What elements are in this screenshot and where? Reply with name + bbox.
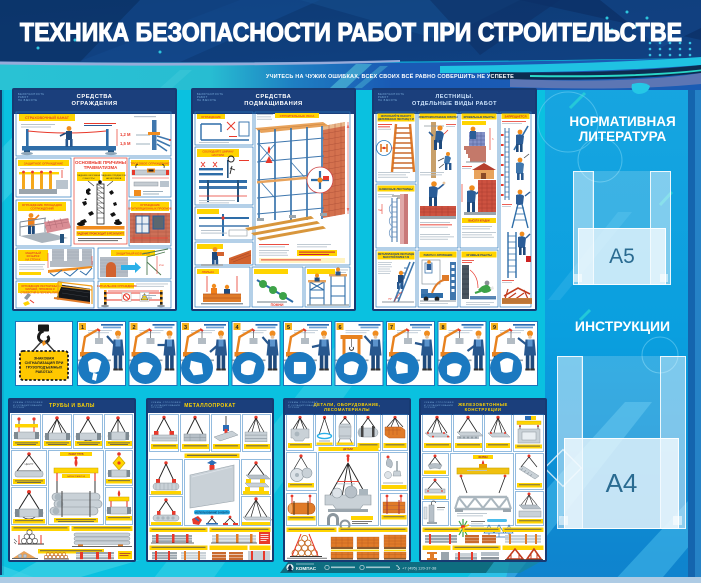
svg-text:ВЫСОТОЙ БОЛЕЕ 5 М: ВЫСОТОЙ БОЛЕЕ 5 М (383, 256, 409, 259)
svg-text:ЗНАКОВАЯ: ЗНАКОВАЯ (34, 357, 54, 361)
svg-text:ОГНЕВЫЕ РАБОТЫ: ОГНЕВЫЕ РАБОТЫ (466, 253, 492, 257)
svg-text:7: 7 (390, 325, 393, 331)
svg-text:1,2 М: 1,2 М (120, 132, 131, 137)
svg-text:СИГНАЛИЗАЦИЯ ПРИ: СИГНАЛИЗАЦИЯ ПРИ (25, 361, 64, 365)
svg-text:ОГРАЖДЕНИЕ: ОГРАЖДЕНИЕ (201, 115, 221, 119)
svg-text:2: 2 (132, 325, 135, 331)
svg-text:ВЫСОТА КЛАДКИ: ВЫСОТА КЛАДКИ (468, 220, 489, 223)
svg-text:С ВЫСОТЫ: С ВЫСОТЫ (82, 178, 94, 180)
svg-text:ЦЕНТР: ЦЕНТР (25, 462, 34, 466)
svg-text:ЛЮЛЬКА: ЛЮЛЬКА (202, 270, 214, 274)
svg-text:75°: 75° (388, 297, 392, 301)
svg-text:СИГНАЛЬНОЕ ОГРАЖДЕНИЕ: СИГНАЛЬНОЕ ОГРАЖДЕНИЕ (97, 284, 137, 288)
svg-text:h: h (492, 137, 494, 141)
svg-text:ВЕНТИЛЯЦИОННЫХ ПРОЕМОВ: ВЕНТИЛЯЦИОННЫХ ПРОЕМОВ (128, 207, 172, 211)
svg-text:1,5 М: 1,5 М (120, 141, 131, 146)
svg-text:БАЛКА-ТРАВЕРСА: БАЛКА-ТРАВЕРСА (67, 475, 85, 478)
svg-text:6: 6 (338, 325, 341, 331)
svg-text:НАВЕСНЫЕ ЛЕСТНИЦЫ: НАВЕСНЫЕ ЛЕСТНИЦЫ (379, 187, 413, 191)
svg-text:ПАДЕНИЕ ЧЕЛОВЕКА: ПАДЕНИЕ ЧЕЛОВЕКА (77, 174, 101, 177)
svg-text:КОМПАС: КОМПАС (296, 566, 317, 571)
svg-text:ПАДЕНИЕ ПРОИСХОДИТ В РЕЗУЛЬТАТ: ПАДЕНИЕ ПРОИСХОДИТ В РЕЗУЛЬТАТЕ (77, 233, 125, 236)
svg-text:ПАДЕНИЕ ПРЕДМЕТОВ: ПАДЕНИЕ ПРЕДМЕТОВ (101, 174, 126, 177)
svg-text:3: 3 (184, 325, 187, 331)
svg-text:НА ЧЕЛОВЕКА: НА ЧЕЛОВЕКА (106, 177, 122, 180)
svg-text:РАБОТЫ С АВТОВЫШКИ: РАБОТЫ С АВТОВЫШКИ (424, 254, 453, 257)
svg-text:СОГРАЖДЕНИЙ: СОГРАЖДЕНИЙ (30, 207, 53, 211)
svg-text:КРОВЕЛЬНЫЕ РАБОТЫ: КРОВЕЛЬНЫЕ РАБОТЫ (464, 115, 495, 119)
svg-text:5: 5 (287, 325, 290, 331)
svg-text:ПАКЕТ ТРУБ: ПАКЕТ ТРУБ (69, 453, 84, 456)
svg-text:ИСПОЛЬЗОВАНИЕ ЗАХВАТА: ИСПОЛЬЗОВАНИЕ ЗАХВАТА (195, 511, 229, 514)
svg-text:СТРАХОВОЧНЫЙ КАНАТ: СТРАХОВОЧНЫЙ КАНАТ (25, 116, 70, 120)
svg-text:СТРОИТЕЛЬНЫЕ ЛЕСА: СТРОИТЕЛЬНЫЕ ЛЕСА (280, 114, 316, 118)
svg-text:ФЕРМЫ: ФЕРМЫ (478, 456, 488, 459)
svg-text:РАБОТАХ: РАБОТАХ (35, 370, 53, 374)
svg-text:ЗАЩИТНОЕ ОГРАЖДЕНИЕ: ЗАЩИТНОЕ ОГРАЖДЕНИЕ (24, 162, 64, 166)
svg-text:НА СТЕНАХ: НА СТЕНАХ (25, 257, 40, 261)
svg-text:ГРУЗОПОДЪЕМНЫХ: ГРУЗОПОДЪЕМНЫХ (26, 366, 63, 370)
svg-text:1: 1 (81, 325, 84, 331)
svg-text:ДЕРЕВЯННЫХ ЛЕСТНИЦ 5 М: ДЕРЕВЯННЫХ ЛЕСТНИЦ 5 М (378, 118, 414, 121)
svg-text:ОТВЕРСТИЙ В ПЕРЕКРЫТИЯХ: ОТВЕРСТИЙ В ПЕРЕКРЫТИЯХ (20, 290, 60, 294)
svg-text:9: 9 (493, 325, 496, 331)
svg-text:ЗАПРЕЩАЕТСЯ: ЗАПРЕЩАЕТСЯ (505, 115, 527, 119)
svg-text:8: 8 (441, 325, 444, 331)
svg-text:2 м: 2 м (159, 263, 164, 267)
svg-text:ЭЛЕКТРОМОНТАЖНЫЕ РАБОТЫ: ЭЛЕКТРОМОНТАЖНЫЕ РАБОТЫ (419, 116, 459, 119)
svg-text:ТРАВМАТИЗМА: ТРАВМАТИЗМА (84, 165, 118, 170)
svg-text:ДЕТАЛИ: ДЕТАЛИ (343, 448, 353, 451)
svg-text:НАСТИЛА: НАСТИЛА (212, 153, 225, 157)
svg-text:ПОМНИ: ПОМНИ (271, 303, 284, 307)
svg-text:5м: 5м (378, 208, 381, 212)
svg-text:+7 (495) 120-37-38: +7 (495) 120-37-38 (402, 566, 437, 571)
